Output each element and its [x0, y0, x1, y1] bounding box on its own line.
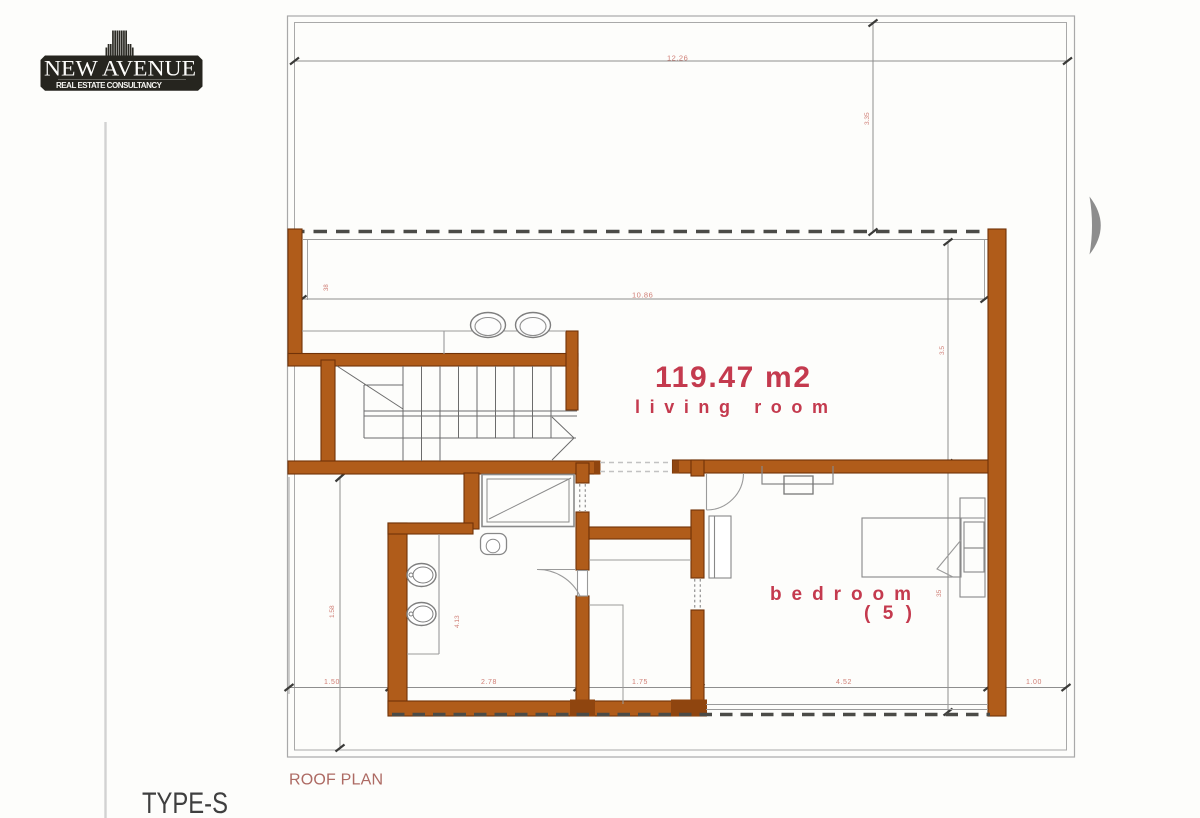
svg-text:3.5: 3.5 [939, 346, 946, 355]
svg-text:REAL ESTATE CONSULTANCY: REAL ESTATE CONSULTANCY [56, 81, 163, 90]
svg-text:38: 38 [324, 284, 330, 291]
svg-text:12.26: 12.26 [667, 54, 688, 63]
svg-text:ROOF PLAN: ROOF PLAN [289, 772, 383, 789]
svg-text:4.52: 4.52 [836, 679, 852, 686]
svg-text:35: 35 [936, 589, 943, 597]
svg-text:3.35: 3.35 [864, 112, 871, 125]
svg-text:(5): (5) [864, 603, 912, 624]
svg-text:bedroom: bedroom [770, 584, 911, 605]
svg-text:NEW AVENUE: NEW AVENUE [44, 56, 196, 81]
svg-text:10.86: 10.86 [632, 291, 653, 300]
svg-text:119.47 m2: 119.47 m2 [655, 361, 810, 394]
svg-text:1.50: 1.50 [324, 679, 340, 686]
svg-text:1.75: 1.75 [632, 679, 648, 686]
svg-text:1.00: 1.00 [1026, 679, 1042, 686]
svg-text:TYPE-S: TYPE-S [142, 787, 228, 818]
svg-text:4.13: 4.13 [454, 615, 461, 628]
svg-text:1.58: 1.58 [329, 605, 336, 618]
svg-text:living room: living room [635, 397, 828, 417]
svg-text:2.78: 2.78 [481, 679, 497, 686]
